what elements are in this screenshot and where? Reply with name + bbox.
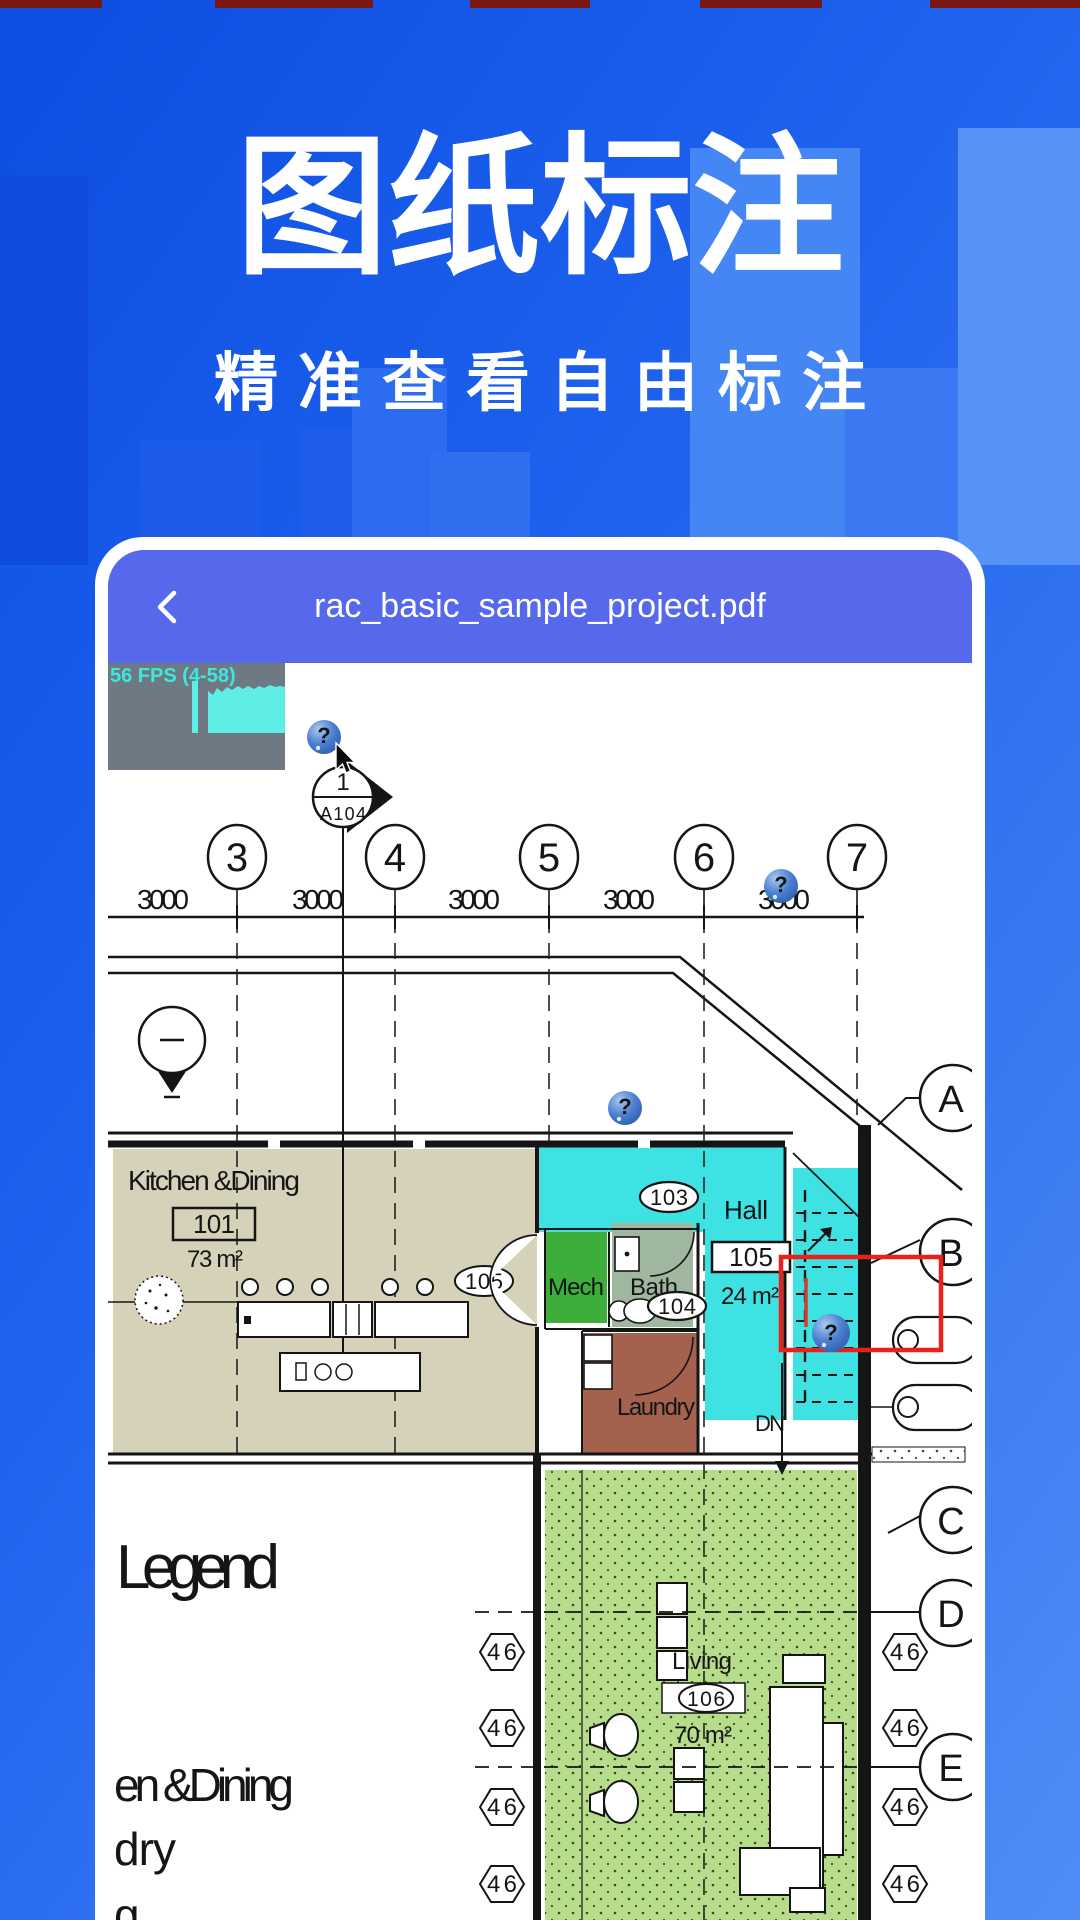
fps-overlay: 56 FPS (4-58) <box>108 663 285 770</box>
room-tag-101: 101 <box>193 1209 235 1239</box>
room-label-mech: Mech <box>548 1274 604 1301</box>
svg-text:?: ? <box>317 723 330 748</box>
section-detail-number: 1 <box>336 769 349 796</box>
svg-text:?: ? <box>774 872 787 897</box>
fps-histogram <box>108 663 285 733</box>
statusbar-segment <box>700 0 822 8</box>
question-marker[interactable]: ? <box>764 869 798 903</box>
legend-item: en &Dining <box>114 1759 294 1811</box>
legend-block: Legend en &Dining dry g <box>114 1533 294 1920</box>
grid-bubble-C: C <box>937 1501 964 1543</box>
room-tag-106: 106 <box>687 1688 725 1711</box>
grid-bubble-5: 5 <box>538 836 560 880</box>
dim-label: 3000 <box>603 884 655 915</box>
room-label-kitchen: Kitchen &Dining <box>128 1165 300 1196</box>
section-sheet-number: A104 <box>320 804 366 824</box>
elevation-marker <box>139 1007 205 1097</box>
grid-bubble-D: D <box>937 1594 964 1636</box>
dim-label: 3000 <box>292 884 344 915</box>
grid-bubble-6: 6 <box>693 836 715 880</box>
statusbar-segment <box>930 0 1080 8</box>
statusbar-segment <box>470 0 590 8</box>
room-label-living: Living <box>672 1648 732 1675</box>
legend-item: g <box>114 1889 140 1920</box>
room-label-hall: Hall <box>724 1195 768 1225</box>
grid-bubble-4: 4 <box>384 836 406 880</box>
room-area-living: 70 m² <box>674 1722 732 1749</box>
room-tag-103: 103 <box>650 1185 688 1210</box>
viewer-header: rac_basic_sample_project.pdf <box>108 550 972 663</box>
room-label-laundry: Laundry <box>617 1394 695 1421</box>
page-subtitle: 精准查看自由标注 <box>0 332 1080 424</box>
statusbar-segment <box>0 0 102 8</box>
question-marker[interactable]: ? <box>812 1314 850 1352</box>
drawing-canvas[interactable]: 56 FPS (4-58) <box>108 663 972 1920</box>
dim-label: 3000 <box>137 884 189 915</box>
viewer-card: rac_basic_sample_project.pdf 56 FPS (4-5… <box>95 537 985 1920</box>
grid-bubble-A: A <box>938 1079 964 1121</box>
grid-bubble-3: 3 <box>226 836 248 880</box>
file-name: rac_basic_sample_project.pdf <box>108 587 972 626</box>
page-title: 图纸标注 <box>0 128 1080 288</box>
right-fixtures <box>871 1317 972 1430</box>
floor-plan: 3 4 5 6 7 3000 3000 3000 3000 3000 <box>108 663 972 1920</box>
statusbar-segment <box>215 0 373 8</box>
room-area-hall: 24 m² <box>721 1283 779 1310</box>
mech-room: Mech <box>548 1274 604 1301</box>
grid-bubble-7: 7 <box>846 836 868 880</box>
dim-label: 3000 <box>448 884 500 915</box>
legend-title: Legend <box>116 1533 280 1602</box>
room-tag-105: 105 <box>729 1242 773 1272</box>
grid-bubble-E: E <box>938 1748 963 1790</box>
svg-text:?: ? <box>618 1094 631 1119</box>
room-area-kitchen: 73 m² <box>187 1246 243 1273</box>
question-marker[interactable]: ? <box>608 1091 642 1125</box>
legend-item: dry <box>114 1823 176 1875</box>
svg-text:?: ? <box>824 1320 837 1345</box>
stairs-dn-label: DN <box>755 1411 785 1436</box>
room-tag-104: 104 <box>658 1294 696 1319</box>
